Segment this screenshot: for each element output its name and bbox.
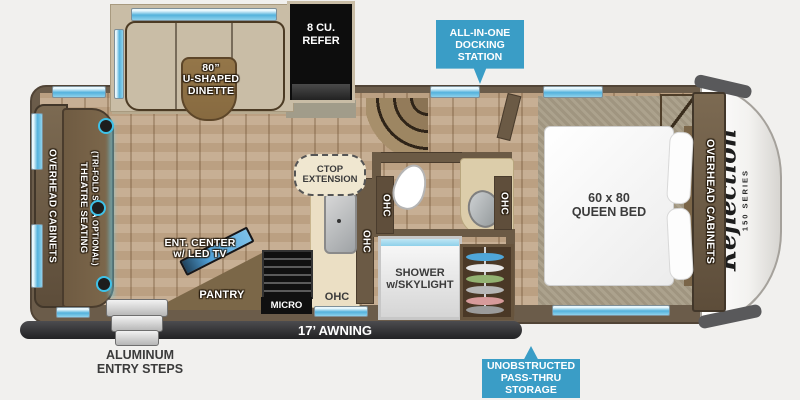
docking-station-callout: ALL-IN-ONE DOCKING STATION (436, 20, 524, 84)
refrigerator-step (292, 84, 350, 100)
hanger (466, 306, 504, 314)
hanger (466, 264, 504, 272)
floorplan-canvas: 17’ AWNING Reflection 150 SERIES OVERHEA… (0, 0, 800, 400)
window-top-rear (52, 86, 106, 98)
cupholder (90, 200, 106, 216)
bath-wall-top (372, 152, 464, 163)
dinette-top-window (131, 8, 277, 21)
refrigerator-label: 8 CU. REFER (290, 22, 352, 47)
ent-center-label: ENT. CENTER w/ LED TV (156, 238, 244, 261)
dinette-slideout: 80” U-SHAPED DINETTE (110, 4, 294, 112)
hanger (466, 297, 504, 305)
awning-label: 17’ AWNING (275, 323, 395, 338)
pillow (666, 207, 694, 280)
window-top-bedroom (543, 86, 603, 98)
microwave-label: MICRO (271, 300, 303, 311)
ohc-kitchen-bottom-label: OHC (312, 291, 362, 303)
shower-label: SHOWER w/SKYLIGHT (381, 267, 459, 291)
dinette-side-window (114, 29, 124, 99)
ohc-strip-vanity: OHC (494, 176, 512, 230)
window-bottom-theatre (56, 307, 90, 318)
awning-bar: 17’ AWNING (20, 321, 522, 339)
theatre-seat-label: THEATRE SEATING (78, 162, 88, 253)
pantry-label: PANTRY (192, 290, 252, 302)
microwave: MICRO (261, 297, 312, 314)
hanger (466, 275, 504, 283)
bedroom-stairs (366, 98, 428, 152)
window-top-hall (430, 86, 480, 98)
ohc-kitchen-label: OHC (360, 230, 371, 253)
hanger (466, 286, 504, 294)
pillow (666, 131, 694, 204)
ohc-strip-bath: OHC (376, 176, 394, 234)
dinette-label: 80” U-SHAPED DINETTE (151, 63, 271, 97)
cupholder (96, 276, 112, 292)
window-rear-upper (31, 113, 43, 170)
kitchen-sink (324, 192, 357, 254)
shower: SHOWER w/SKYLIGHT (378, 236, 462, 320)
shower-skylight-strip (381, 239, 459, 246)
seat-floor-glow (109, 120, 114, 298)
stove (262, 250, 313, 299)
ctop-extension: CTOP EXTENSION (294, 154, 366, 196)
entry-step (115, 330, 159, 346)
cupholder (98, 118, 114, 134)
overhead-cabinets-rear-label: OVERHEAD CABINETS (46, 149, 57, 263)
window-rear-lower (31, 224, 43, 288)
pass-thru-storage-callout: UNOBSTRUCTED PASS-THRU STORAGE (482, 346, 580, 398)
ohc-vanity-label: OHC (498, 192, 509, 215)
entry-steps-label: ALUMINUM ENTRY STEPS (92, 349, 188, 377)
queen-bed-label: 60 x 80 QUEEN BED (572, 192, 646, 220)
window-bottom-kitchen (314, 306, 368, 317)
window-bottom-bedroom (552, 305, 670, 316)
hanger (466, 253, 504, 261)
overhead-cabinets-bedroom-label: OVERHEAD CABINETS (703, 139, 715, 264)
overhead-cabinets-bedroom: OVERHEAD CABINETS (692, 92, 726, 312)
refrigerator-pad (286, 100, 356, 118)
ohc-bath-label: OHC (380, 194, 391, 217)
queen-bed: 60 x 80 QUEEN BED (544, 126, 674, 286)
refrigerator: 8 CU. REFER (290, 4, 352, 100)
brand-series: 150 SERIES (741, 113, 750, 288)
closet (460, 244, 514, 320)
kitchen-sink-drain (337, 219, 341, 223)
